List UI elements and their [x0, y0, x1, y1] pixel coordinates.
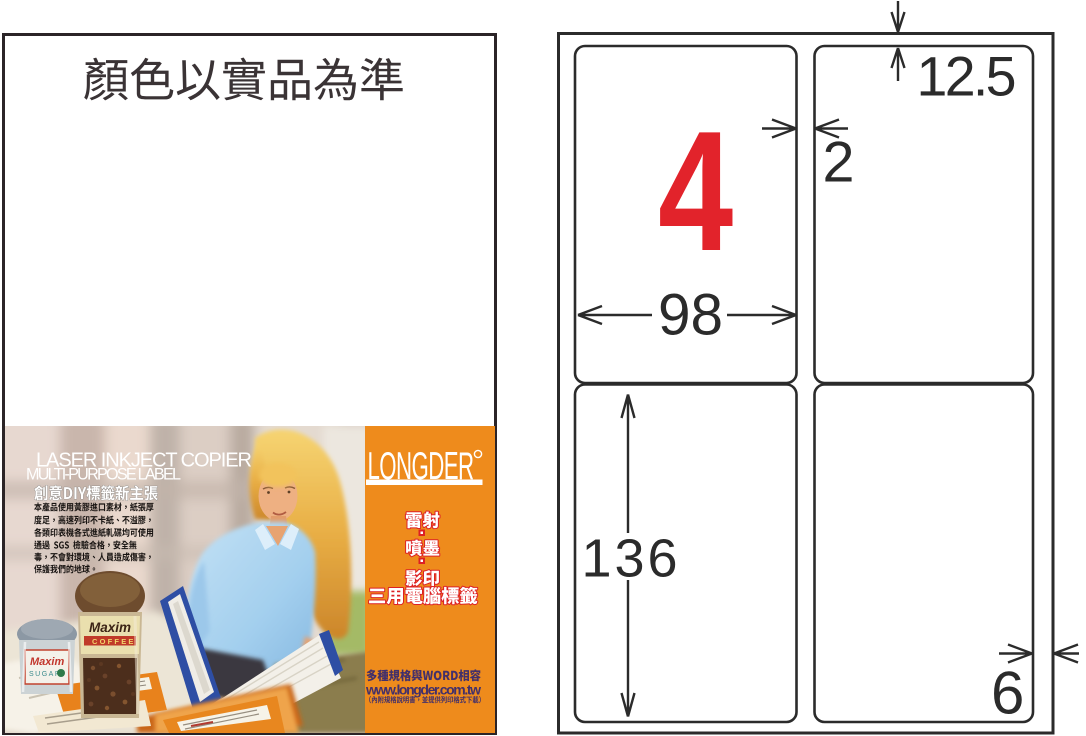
svg-text:136: 136 [582, 529, 678, 589]
svg-text:6: 6 [991, 660, 1024, 727]
svg-text:Maxim: Maxim [89, 620, 131, 635]
svg-text:COFFEE: COFFEE [92, 637, 136, 646]
svg-text:www.longder.com.tw: www.longder.com.tw [365, 682, 481, 698]
svg-text:MULTI-PURPOSE LABEL: MULTI-PURPOSE LABEL [26, 466, 181, 484]
svg-text:98: 98 [658, 283, 723, 348]
svg-text:4: 4 [658, 96, 733, 287]
svg-text:SUGAR: SUGAR [29, 671, 61, 678]
svg-text:12.5: 12.5 [917, 46, 1017, 108]
svg-text:Maxim: Maxim [30, 656, 64, 668]
svg-text:2: 2 [823, 131, 855, 195]
